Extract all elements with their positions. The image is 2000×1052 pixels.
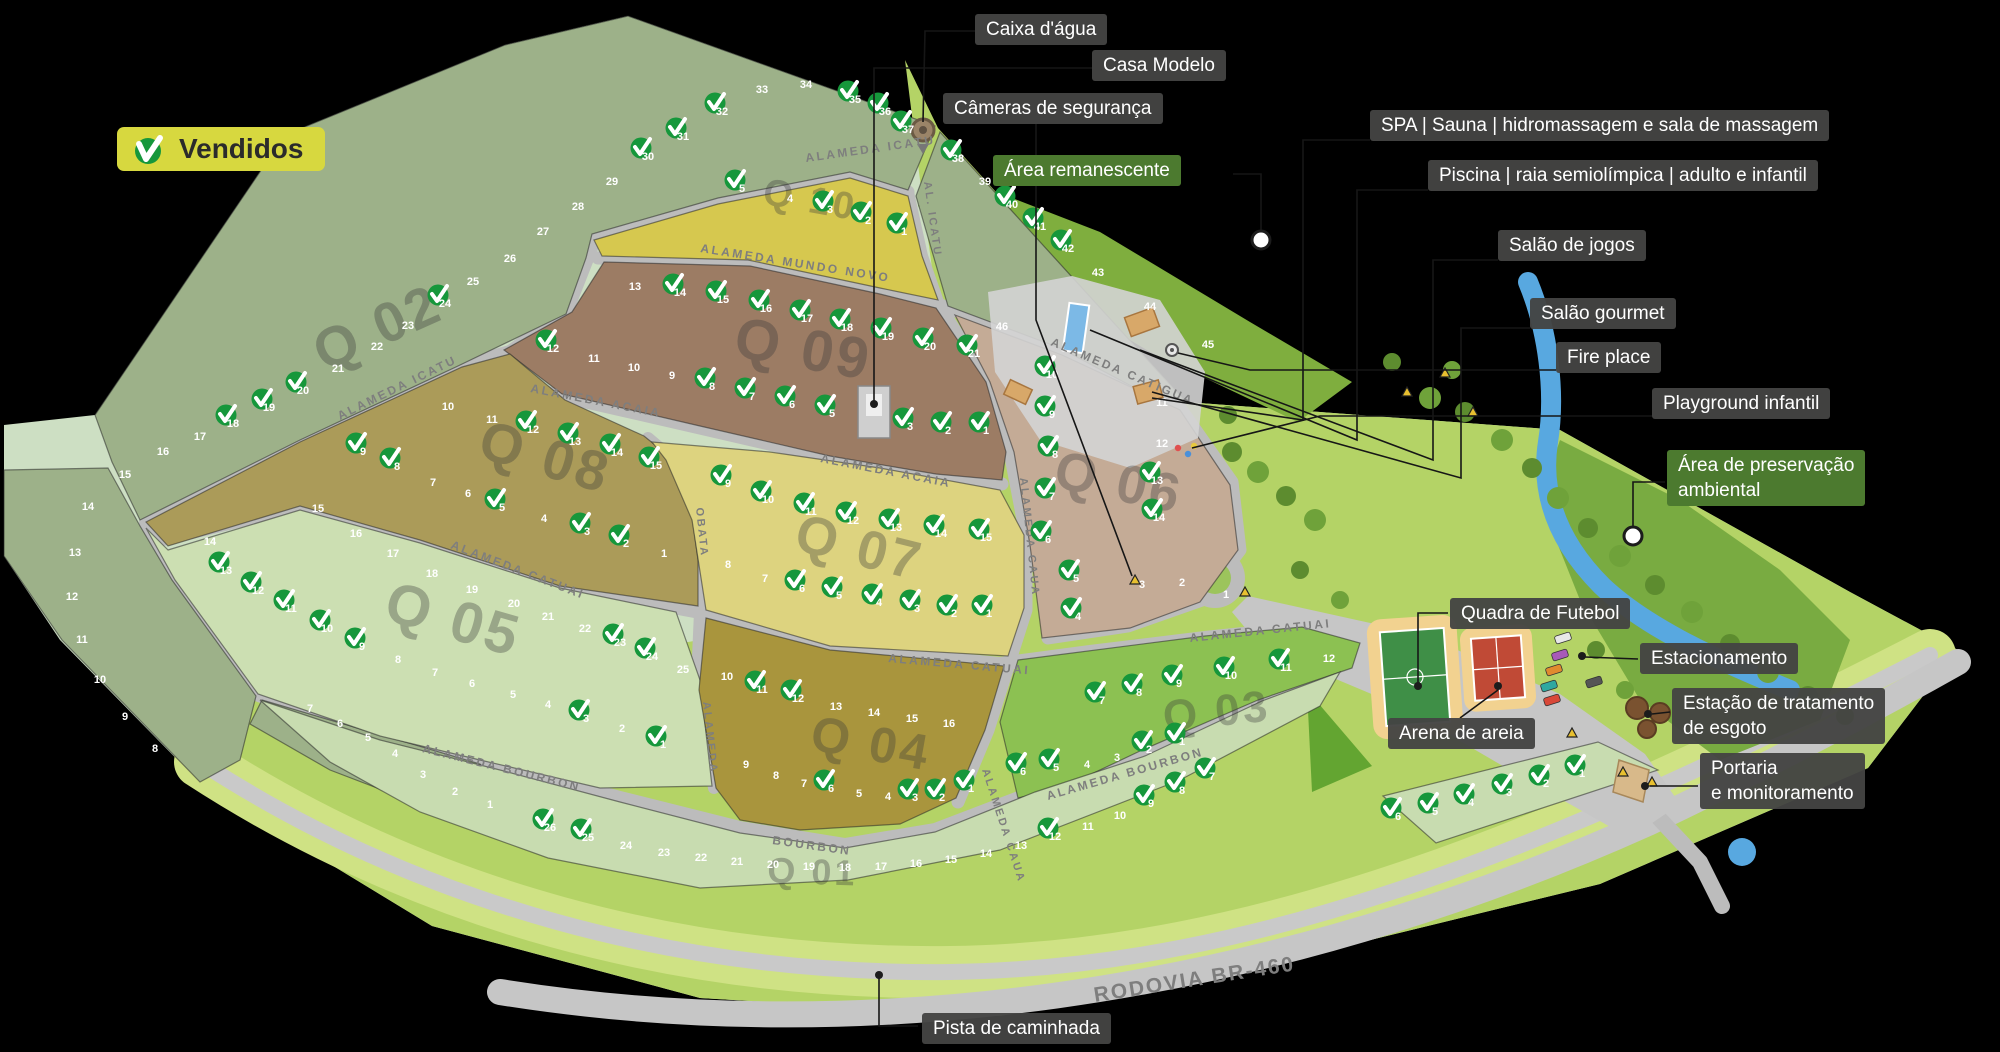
lot-number: 11 xyxy=(588,353,600,365)
lot-q02-46[interactable]: 46 xyxy=(996,321,1008,333)
lot-q04-8[interactable]: 8 xyxy=(773,770,779,782)
lot-number: 1 xyxy=(487,799,493,811)
lot-number: 37 xyxy=(902,124,914,136)
lot-q05-21[interactable]: 21 xyxy=(542,611,554,623)
lot-q04-16[interactable]: 16 xyxy=(943,718,955,730)
lot-number: 10 xyxy=(94,674,106,686)
lot-q05-4[interactable]: 4 xyxy=(545,699,552,711)
pointer-dot-pista-caminhada xyxy=(875,971,883,979)
lot-q01-13[interactable]: 13 xyxy=(1015,840,1027,852)
lot-number: 10 xyxy=(628,362,640,374)
lot-number: 3 xyxy=(912,792,918,804)
lot-q02-3[interactable]: 3 xyxy=(420,769,426,781)
lot-number: 9 xyxy=(725,478,731,490)
lot-q04-4[interactable]: 4 xyxy=(885,791,892,803)
lot-number: 5 xyxy=(739,183,745,195)
lot-number: 14 xyxy=(1153,512,1166,524)
tree-icon xyxy=(1291,561,1309,579)
lot-number: 1 xyxy=(1179,736,1185,748)
lot-number: 13 xyxy=(1015,840,1027,852)
lot-number: 20 xyxy=(767,859,779,871)
lot-number: 32 xyxy=(716,106,728,118)
lot-number: 18 xyxy=(227,418,239,430)
lot-number: 9 xyxy=(1148,798,1154,810)
lot-number: 6 xyxy=(337,718,343,730)
map-marker-1 xyxy=(1624,527,1642,545)
lot-q01-18[interactable]: 18 xyxy=(839,862,851,874)
lot-q08-11[interactable]: 11 xyxy=(486,414,498,426)
lot-q07-7[interactable]: 7 xyxy=(762,573,768,585)
lot-q08-4[interactable]: 4 xyxy=(541,513,548,525)
lot-number: 5 xyxy=(1073,573,1079,585)
lot-number: 8 xyxy=(709,381,715,393)
lot-q09-10[interactable]: 10 xyxy=(628,362,640,374)
lot-q02-25[interactable]: 25 xyxy=(467,276,479,288)
lot-q08-1[interactable]: 1 xyxy=(661,548,667,560)
lot-number: 13 xyxy=(1151,475,1163,487)
lot-number: 6 xyxy=(1395,811,1401,823)
lot-q09-13[interactable]: 13 xyxy=(629,281,641,293)
lot-q04-9[interactable]: 9 xyxy=(743,759,749,771)
lot-number: 17 xyxy=(875,861,887,873)
lot-number: 25 xyxy=(467,276,479,288)
lot-q01-21[interactable]: 21 xyxy=(731,856,743,868)
lot-q05-22[interactable]: 22 xyxy=(579,623,591,635)
lot-number: 5 xyxy=(836,590,842,602)
lot-number: 8 xyxy=(1136,687,1142,699)
lot-q01-20[interactable]: 20 xyxy=(767,859,779,871)
lot-number: 19 xyxy=(803,861,815,873)
tree-icon xyxy=(1547,487,1569,509)
map-marker-0 xyxy=(1252,231,1270,249)
lot-q09-11[interactable]: 11 xyxy=(588,353,600,365)
lot-number: 21 xyxy=(731,856,743,868)
lot-q01-11[interactable]: 11 xyxy=(1082,821,1094,833)
lot-number: 43 xyxy=(1092,267,1104,279)
lot-q02-17[interactable]: 17 xyxy=(194,431,206,443)
lot-number: 4 xyxy=(1075,611,1082,623)
lot-number: 17 xyxy=(387,548,399,560)
lot-number: 24 xyxy=(439,298,452,310)
lot-q02-15[interactable]: 15 xyxy=(119,469,131,481)
lot-number: 18 xyxy=(841,322,853,334)
lot-q02-29[interactable]: 29 xyxy=(606,176,618,188)
lot-q01-19[interactable]: 19 xyxy=(803,861,815,873)
lot-number: 11 xyxy=(805,506,817,518)
lot-q01-16[interactable]: 16 xyxy=(910,858,922,870)
lot-q01-22[interactable]: 22 xyxy=(695,852,707,864)
lot-number: 24 xyxy=(646,651,659,663)
lot-number: 3 xyxy=(907,421,913,433)
lot-number: 7 xyxy=(749,391,755,403)
lot-number: 13 xyxy=(629,281,641,293)
lot-number: 5 xyxy=(499,502,505,514)
pointer-dot-arena-areia xyxy=(1494,682,1502,690)
lot-number: 4 xyxy=(545,699,552,711)
tree-icon xyxy=(1419,387,1441,409)
lot-q02-2[interactable]: 2 xyxy=(452,786,458,798)
pointer-dot-casa-modelo xyxy=(870,400,878,408)
lot-q01-17[interactable]: 17 xyxy=(875,861,887,873)
lot-q05-6[interactable]: 6 xyxy=(469,678,475,690)
lot-q02-22[interactable]: 22 xyxy=(371,341,383,353)
lot-q02-16[interactable]: 16 xyxy=(157,446,169,458)
tree-icon xyxy=(1383,353,1401,371)
lot-number: 14 xyxy=(935,528,948,540)
lot-q02-13[interactable]: 13 xyxy=(69,547,81,559)
lot-number: 21 xyxy=(332,363,344,375)
lot-number: 10 xyxy=(1114,810,1126,822)
lot-number: 22 xyxy=(579,623,591,635)
lot-number: 1 xyxy=(660,739,666,751)
lot-number: 2 xyxy=(951,608,957,620)
lot-q04-10[interactable]: 10 xyxy=(721,671,733,683)
lot-q05-15[interactable]: 15 xyxy=(312,503,324,515)
lot-number: 12 xyxy=(547,343,559,355)
lot-q02-10[interactable]: 10 xyxy=(94,674,106,686)
lot-number: 8 xyxy=(725,559,731,571)
lot-number: 34 xyxy=(800,79,813,91)
lot-q01-10[interactable]: 10 xyxy=(1114,810,1126,822)
lot-q02-44[interactable]: 44 xyxy=(1144,301,1157,313)
lot-number: 35 xyxy=(849,94,861,106)
lot-number: 19 xyxy=(263,402,275,414)
lot-number: 20 xyxy=(297,385,309,397)
tree-icon xyxy=(1247,461,1269,483)
lot-q05-19[interactable]: 19 xyxy=(466,584,478,596)
lot-number: 30 xyxy=(642,151,654,163)
lot-number: 13 xyxy=(69,547,81,559)
lot-number: 16 xyxy=(157,446,169,458)
lot-number: 12 xyxy=(1156,438,1168,450)
lot-q05-7[interactable]: 7 xyxy=(432,667,438,679)
lot-number: 18 xyxy=(426,568,438,580)
lot-number: 15 xyxy=(650,460,662,472)
lot-number: 15 xyxy=(906,713,918,725)
lot-number: 14 xyxy=(980,848,993,860)
lot-q01-23[interactable]: 23 xyxy=(658,847,670,859)
lot-number: 9 xyxy=(669,370,675,382)
lot-number: 5 xyxy=(856,788,862,800)
lot-number: 2 xyxy=(939,792,945,804)
lot-number: 14 xyxy=(674,287,687,299)
lot-q05-20[interactable]: 20 xyxy=(508,598,520,610)
lot-q06-2[interactable]: 2 xyxy=(1179,577,1185,589)
lot-number: 3 xyxy=(1139,579,1145,591)
lot-number: 4 xyxy=(885,791,892,803)
lot-q02-11[interactable]: 11 xyxy=(76,634,88,646)
lot-q02-34[interactable]: 34 xyxy=(800,79,813,91)
lot-q08-6[interactable]: 6 xyxy=(465,488,471,500)
lot-number: 6 xyxy=(469,678,475,690)
lot-number: 7 xyxy=(801,778,807,790)
lot-number: 27 xyxy=(537,226,549,238)
lot-number: 9 xyxy=(1176,678,1182,690)
lot-number: 3 xyxy=(420,769,426,781)
lot-number: 5 xyxy=(1432,806,1438,818)
lot-number: 45 xyxy=(1202,339,1214,351)
lot-number: 23 xyxy=(402,320,414,332)
lot-number: 8 xyxy=(1179,785,1185,797)
lot-number: 3 xyxy=(1114,752,1120,764)
lot-q05-2[interactable]: 2 xyxy=(619,723,625,735)
pointer-dot-ete xyxy=(1644,710,1652,718)
tree-icon xyxy=(1304,509,1326,531)
lot-number: 15 xyxy=(119,469,131,481)
lot-number: 13 xyxy=(220,565,232,577)
lot-number: 14 xyxy=(204,536,217,548)
lot-number: 3 xyxy=(827,204,833,216)
lot-number: 9 xyxy=(359,641,365,653)
lot-number: 4 xyxy=(392,748,399,760)
lot-q05-5[interactable]: 5 xyxy=(510,689,516,701)
lot-number: 3 xyxy=(1506,787,1512,799)
lot-q02-43[interactable]: 43 xyxy=(1092,267,1104,279)
lot-number: 46 xyxy=(996,321,1008,333)
lot-number: 7 xyxy=(1209,771,1215,783)
lot-q02-5[interactable]: 5 xyxy=(365,732,371,744)
lot-number: 42 xyxy=(1062,243,1074,255)
lot-number: 12 xyxy=(252,585,264,597)
lot-number: 17 xyxy=(801,313,813,325)
lot-q01-14[interactable]: 14 xyxy=(980,848,993,860)
lot-number: 20 xyxy=(924,341,936,353)
lot-q10-4[interactable]: 4 xyxy=(787,193,794,205)
lot-number: 1 xyxy=(661,548,667,560)
lot-q04-13[interactable]: 13 xyxy=(830,701,842,713)
lot-number: 22 xyxy=(695,852,707,864)
lot-number: 24 xyxy=(620,840,633,852)
lot-number: 26 xyxy=(504,253,516,265)
lot-q02-39[interactable]: 39 xyxy=(979,176,991,188)
tree-icon xyxy=(1681,601,1703,623)
lot-number: 25 xyxy=(582,832,594,844)
lot-number: 12 xyxy=(66,591,78,603)
lot-number: 21 xyxy=(542,611,554,623)
lot-number: 2 xyxy=(452,786,458,798)
lot-number: 9 xyxy=(122,711,128,723)
tree-icon xyxy=(1645,575,1665,595)
lot-q05-17[interactable]: 17 xyxy=(387,548,399,560)
lot-q02-33[interactable]: 33 xyxy=(756,84,768,96)
lot-number: 2 xyxy=(865,215,871,227)
sand-court-icon xyxy=(1459,624,1537,713)
lot-q04-5[interactable]: 5 xyxy=(856,788,862,800)
lot-number: 17 xyxy=(194,431,206,443)
lot-q07-8[interactable]: 8 xyxy=(725,559,731,571)
lot-number: 8 xyxy=(394,461,400,473)
lot-q01-15[interactable]: 15 xyxy=(945,854,957,866)
lot-number: 33 xyxy=(756,84,768,96)
lot-number: 3 xyxy=(914,603,920,615)
lot-number: 8 xyxy=(395,654,401,666)
lot-number: 12 xyxy=(527,424,539,436)
lot-number: 7 xyxy=(1049,491,1055,503)
tree-icon xyxy=(1609,545,1631,567)
lot-q08-7[interactable]: 7 xyxy=(430,477,436,489)
lot-number: 8 xyxy=(152,743,158,755)
lot-q06-1[interactable]: 1 xyxy=(1223,589,1229,601)
tree-icon xyxy=(1578,518,1598,538)
lot-number: 28 xyxy=(572,201,584,213)
pointer-dot-estacionamento xyxy=(1578,652,1586,660)
lot-number: 29 xyxy=(606,176,618,188)
lot-q05-8[interactable]: 8 xyxy=(395,654,401,666)
lot-number: 1 xyxy=(1223,589,1229,601)
lot-q02-6[interactable]: 6 xyxy=(337,718,343,730)
lot-number: 20 xyxy=(508,598,520,610)
lot-q05-25[interactable]: 25 xyxy=(677,664,689,676)
lot-q09-9[interactable]: 9 xyxy=(669,370,675,382)
lot-number: 12 xyxy=(847,515,859,527)
lot-q03-12[interactable]: 12 xyxy=(1323,653,1335,665)
lot-number: 15 xyxy=(717,294,729,306)
lot-q06-12[interactable]: 12 xyxy=(1156,438,1168,450)
lot-number: 15 xyxy=(980,532,992,544)
lot-q02-26[interactable]: 26 xyxy=(504,253,516,265)
lot-q02-14[interactable]: 14 xyxy=(82,501,95,513)
lot-number: 21 xyxy=(968,348,980,360)
tree-icon xyxy=(1522,458,1542,478)
lot-number: 1 xyxy=(983,425,989,437)
lot-number: 15 xyxy=(945,854,957,866)
lot-number: 5 xyxy=(510,689,516,701)
tree-icon xyxy=(1587,641,1605,659)
lot-q02-27[interactable]: 27 xyxy=(537,226,549,238)
lot-q02-8[interactable]: 8 xyxy=(152,743,158,755)
lot-number: 5 xyxy=(829,408,835,420)
lot-number: 6 xyxy=(1020,766,1026,778)
lot-number: 9 xyxy=(1049,409,1055,421)
lot-number: 2 xyxy=(1543,778,1549,790)
legend-label: Vendidos xyxy=(179,133,303,165)
legend-vendidos: Vendidos xyxy=(117,127,325,171)
soccer-field-icon xyxy=(1366,614,1464,740)
tree-icon xyxy=(1616,681,1634,699)
lot-number: 14 xyxy=(868,707,881,719)
lot-number: 10 xyxy=(1225,670,1237,682)
lot-q03-4[interactable]: 4 xyxy=(1084,759,1091,771)
lot-q02-7[interactable]: 7 xyxy=(307,703,313,715)
masterplan-screenshot: Q 02Q 10Q 09Q 08Q 07Q 06Q 05Q 04Q 03Q 01… xyxy=(0,0,2000,1052)
lot-number: 25 xyxy=(677,664,689,676)
lot-q04-7[interactable]: 7 xyxy=(801,778,807,790)
lot-number: 11 xyxy=(756,684,768,696)
lot-number: 13 xyxy=(890,522,902,534)
lot-q05-18[interactable]: 18 xyxy=(426,568,438,580)
lot-number: 14 xyxy=(82,501,95,513)
lot-number: 2 xyxy=(1146,744,1152,756)
sold-check-icon xyxy=(129,130,167,168)
lot-number: 26 xyxy=(544,822,556,834)
lot-number: 10 xyxy=(321,623,333,635)
lot-number: 16 xyxy=(350,528,362,540)
lot-number: 16 xyxy=(943,718,955,730)
lot-q01-24[interactable]: 24 xyxy=(620,840,633,852)
lot-number: 6 xyxy=(1045,534,1051,546)
lot-q02-28[interactable]: 28 xyxy=(572,201,584,213)
lot-q02-4[interactable]: 4 xyxy=(392,748,399,760)
lot-q04-15[interactable]: 15 xyxy=(906,713,918,725)
lot-number: 2 xyxy=(623,538,629,550)
lot-q04-14[interactable]: 14 xyxy=(868,707,881,719)
lot-number: 11 xyxy=(486,414,498,426)
lot-number: 7 xyxy=(432,667,438,679)
lot-number: 12 xyxy=(1049,831,1061,843)
lot-number: 11 xyxy=(76,634,88,646)
lot-number: 1 xyxy=(901,226,907,238)
lot-q02-9[interactable]: 9 xyxy=(122,711,128,723)
lot-number: 12 xyxy=(792,693,804,705)
lot-number: 1 xyxy=(1579,768,1585,780)
lot-number: 7 xyxy=(307,703,313,715)
lot-number: 10 xyxy=(762,494,774,506)
lot-number: 11 xyxy=(285,603,297,615)
pond xyxy=(1728,838,1756,866)
lot-q05-16[interactable]: 16 xyxy=(350,528,362,540)
lot-number: 16 xyxy=(760,303,772,315)
lot-number: 23 xyxy=(614,637,626,649)
lot-q02-1[interactable]: 1 xyxy=(487,799,493,811)
lot-number: 1 xyxy=(968,783,974,795)
pointer-dot-quadra-futebol xyxy=(1414,682,1422,690)
lot-q03-3[interactable]: 3 xyxy=(1114,752,1120,764)
lot-number: 1 xyxy=(986,608,992,620)
lot-number: 4 xyxy=(1468,797,1475,809)
lot-number: 4 xyxy=(541,513,548,525)
lot-number: 31 xyxy=(677,131,689,143)
tree-icon xyxy=(1720,634,1740,654)
lot-number: 18 xyxy=(839,862,851,874)
tree-icon xyxy=(1491,429,1513,451)
lot-number: 10 xyxy=(721,671,733,683)
lot-number: 39 xyxy=(979,176,991,188)
lot-q02-21[interactable]: 21 xyxy=(332,363,344,375)
tree-icon xyxy=(1798,686,1818,706)
lot-q02-23[interactable]: 23 xyxy=(402,320,414,332)
lot-q05-14[interactable]: 14 xyxy=(204,536,217,548)
lot-number: 13 xyxy=(569,436,581,448)
lot-number: 2 xyxy=(619,723,625,735)
lot-number: 6 xyxy=(465,488,471,500)
lot-q02-45[interactable]: 45 xyxy=(1202,339,1214,351)
lot-number: 10 xyxy=(442,401,454,413)
tree-icon xyxy=(1276,486,1296,506)
lot-number: 2 xyxy=(1179,577,1185,589)
lot-q06-3[interactable]: 3 xyxy=(1139,579,1145,591)
lot-number: 7 xyxy=(1099,695,1105,707)
lot-number: 4 xyxy=(1084,759,1091,771)
lot-q02-12[interactable]: 12 xyxy=(66,591,78,603)
tree-icon xyxy=(1331,591,1349,609)
lot-number: 7 xyxy=(430,477,436,489)
lot-number: 22 xyxy=(371,341,383,353)
lot-number: 6 xyxy=(789,399,795,411)
lot-number: 8 xyxy=(1052,449,1058,461)
lot-q08-10[interactable]: 10 xyxy=(442,401,454,413)
lot-number: 9 xyxy=(743,759,749,771)
lot-number: 13 xyxy=(830,701,842,713)
lot-number: 2 xyxy=(945,425,951,437)
lot-number: 11 xyxy=(1280,662,1292,674)
lot-number: 44 xyxy=(1144,301,1157,313)
lot-number: 5 xyxy=(1053,762,1059,774)
lot-number: 38 xyxy=(952,153,964,165)
lot-number: 8 xyxy=(773,770,779,782)
lot-number: 40 xyxy=(1006,199,1018,211)
lot-number: 36 xyxy=(879,106,891,118)
lot-number: 11 xyxy=(1082,821,1094,833)
